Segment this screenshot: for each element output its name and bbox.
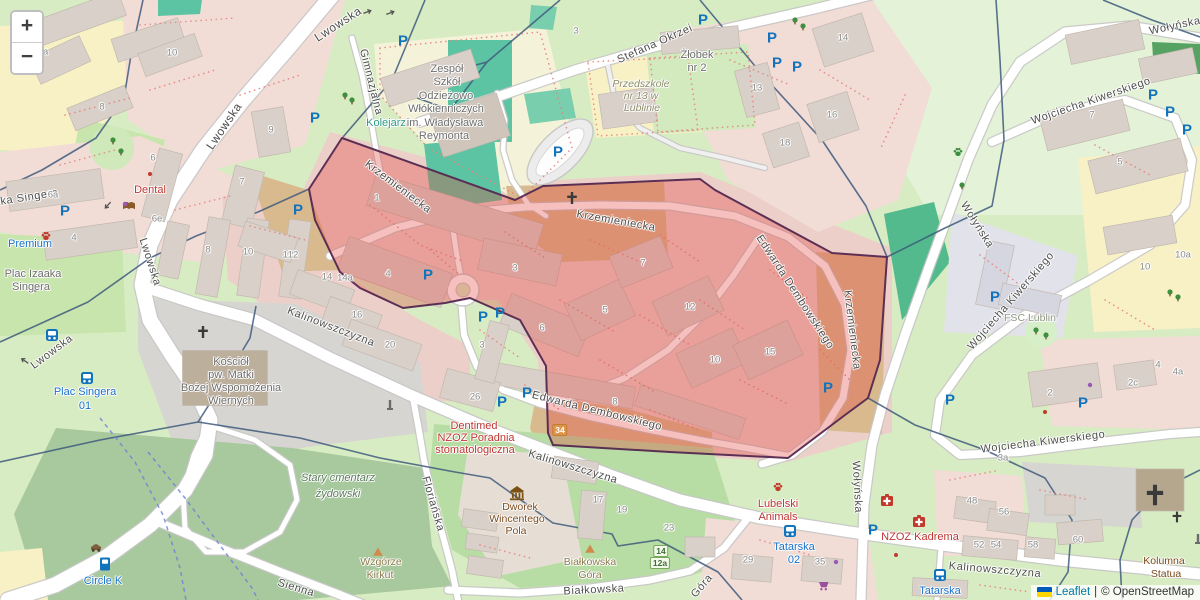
paw-toe [776,483,779,486]
arrow-shape [362,9,371,16]
arrow-shape [20,357,29,365]
tree-trunk [794,22,795,24]
monument-shaft [1197,534,1199,542]
parking-icon: P [990,289,1000,306]
area-pitch-f [529,5,557,30]
building [685,537,715,557]
parking-icon: P [1078,395,1088,412]
museum-base [510,498,524,500]
tree-trunk [1035,332,1036,334]
bus-wheel [53,337,56,340]
car-wheel [97,549,100,552]
parking-icon: P [522,385,532,402]
ukraine-flag-icon [1037,587,1052,597]
parking-icon: P [495,305,505,322]
bus-wheel [791,533,794,536]
dot [123,202,127,206]
parcel-line [980,585,1030,592]
parking-letter: P [293,202,303,219]
paw-toe [42,234,45,237]
parking-letter: P [1078,395,1088,412]
parking-icon: P [767,30,777,47]
building [1136,469,1184,511]
parking-letter: P [823,380,833,397]
fuel-screen [102,560,108,564]
parking-letter: P [478,309,488,326]
oneway-arrow-icon [20,357,29,365]
dot [148,172,152,176]
building [1024,537,1056,560]
tree-icon [800,23,805,28]
bus-window [83,374,91,379]
leaflet-link[interactable]: Leaflet [1056,586,1091,598]
paw-toe [954,150,957,153]
parking-letter: P [698,12,708,29]
poi-dot-icon [1043,410,1047,414]
bus-wheel [936,577,939,580]
parking-letter: P [772,55,782,72]
parking-letter: P [868,522,878,539]
parking-letter: P [497,394,507,411]
poi-dot-icon [148,172,152,176]
tree-icon [1175,294,1180,299]
kit-cross-h [915,521,922,523]
parking-icon: P [868,522,878,539]
parking-icon: P [310,110,320,127]
parking-icon: P [553,144,563,161]
fuel-box [100,558,110,571]
paw-toe [48,234,51,237]
dot [1088,383,1092,387]
tree-icon [792,17,797,22]
parking-icon: P [1182,122,1192,139]
car-wheel [92,549,95,552]
building [598,87,657,129]
museum-column [512,493,514,498]
tree-icon [118,148,123,153]
cross-shape [1173,512,1182,523]
building [1113,360,1156,390]
building [577,490,606,540]
parking-letter: P [522,385,532,402]
cart-wheel [820,588,822,590]
cart-wheel [825,588,827,590]
medical-kit-icon [913,515,925,527]
parking-icon: P [1165,104,1175,121]
bus-window [786,527,794,532]
tree-trunk [112,142,113,144]
bus-wheel [786,533,789,536]
attribution-bar: Leaflet | © OpenStreetMap [1031,585,1200,600]
building [962,536,1019,561]
parking-icon: P [497,394,507,411]
bus-wheel [83,380,86,383]
tree-icon [1033,327,1038,332]
paw-pad [955,152,960,157]
tree-trunk [1169,294,1170,296]
oneway-arrow-icon [385,10,394,17]
christian-cross-icon [1173,512,1182,523]
area-circle [90,126,134,170]
area-pitch-c [524,88,576,124]
tree-icon [959,182,964,187]
openstreetmap-link[interactable]: © OpenStreetMap [1101,586,1194,598]
parking-icon: P [792,59,802,76]
bus-stop-icon [784,525,796,537]
bus-wheel [48,337,51,340]
tree-trunk [344,97,345,99]
paw-toe [780,485,783,488]
parking-icon: P [478,309,488,326]
parking-letter: P [398,33,408,50]
dot [1043,410,1047,414]
bus-stop-icon [81,372,93,384]
bus-wheel [941,577,944,580]
parking-letter: P [990,289,1000,306]
tree-icon [349,97,354,102]
paw-toe [778,483,781,486]
paw-icon [774,483,783,491]
tree-icon [1043,332,1048,337]
area-pitch-e [158,0,202,16]
arrow-shape [385,10,394,17]
zoom-control: + − [10,10,44,75]
map-canvas: PPPPPPPPPPPPPPPPPPPPPP [0,0,1200,600]
dot [834,560,838,564]
parking-letter: P [1148,87,1158,104]
parking-icon: P [423,267,433,284]
tree-trunk [120,153,121,155]
bus-stop-icon [46,329,58,341]
paw-pad [43,236,48,241]
parking-icon: P [772,55,782,72]
paw-toe [774,485,777,488]
shop-dot-icon [834,560,838,564]
monument-shaft [389,400,391,408]
bus-window [48,331,56,336]
area-circle [1025,316,1057,348]
paw-toe [46,232,49,235]
parking-letter: P [792,59,802,76]
shop-dot-icon [1088,383,1092,387]
bus-window [936,571,944,576]
tree-icon [342,92,347,97]
parking-letter: P [310,110,320,127]
zoom-out-button[interactable]: − [12,43,42,73]
tree-icon [1167,289,1172,294]
parking-icon: P [60,203,70,220]
dot [894,553,898,557]
kit-cross-h [883,500,890,502]
parking-letter: P [1165,104,1175,121]
monument-icon [1195,534,1200,544]
poi-dot-icon [894,553,898,557]
building [1045,495,1075,515]
parking-letter: P [423,267,433,284]
parking-icon: P [945,392,955,409]
parking-letter: P [1182,122,1192,139]
tree-trunk [1177,299,1178,301]
parking-icon: P [698,12,708,29]
building [731,554,773,582]
monument-base [1195,542,1200,544]
paw-toe [958,148,961,151]
zoom-in-button[interactable]: + [12,12,42,43]
parking-icon: P [293,202,303,219]
museum-column [515,493,517,498]
area-gray-se [1022,462,1142,528]
tree-trunk [961,187,962,189]
bus-stop-icon [934,569,946,581]
paw-toe [960,150,963,153]
museum-column [522,493,524,498]
parking-letter: P [60,203,70,220]
monument-base [387,408,393,410]
paw-toe [956,148,959,151]
oneway-arrow-icon [362,9,371,16]
parking-icon: P [398,33,408,50]
building [1057,519,1104,545]
parking-icon: P [823,380,833,397]
paw-toe [44,232,47,235]
bus-wheel [88,380,91,383]
museum-column [519,493,521,498]
parking-letter: P [945,392,955,409]
fuel-station-icon [100,558,110,571]
tree-trunk [802,28,803,30]
tree-trunk [351,102,352,104]
paw-pad [775,487,780,492]
parking-icon: P [1148,87,1158,104]
museum-lintel [511,491,524,493]
attribution-separator: | [1094,586,1097,598]
parking-letter: P [767,30,777,47]
parking-letter: P [553,144,563,161]
building [183,351,268,406]
tree-trunk [1045,337,1046,339]
tree-icon [110,137,115,142]
shop-dot-icon [123,202,127,206]
medical-kit-icon [881,494,893,506]
map-viewport[interactable]: PPPPPPPPPPPPPPPPPPPPPP LwowskaLwowskaLwo… [0,0,1200,600]
parking-letter: P [495,305,505,322]
